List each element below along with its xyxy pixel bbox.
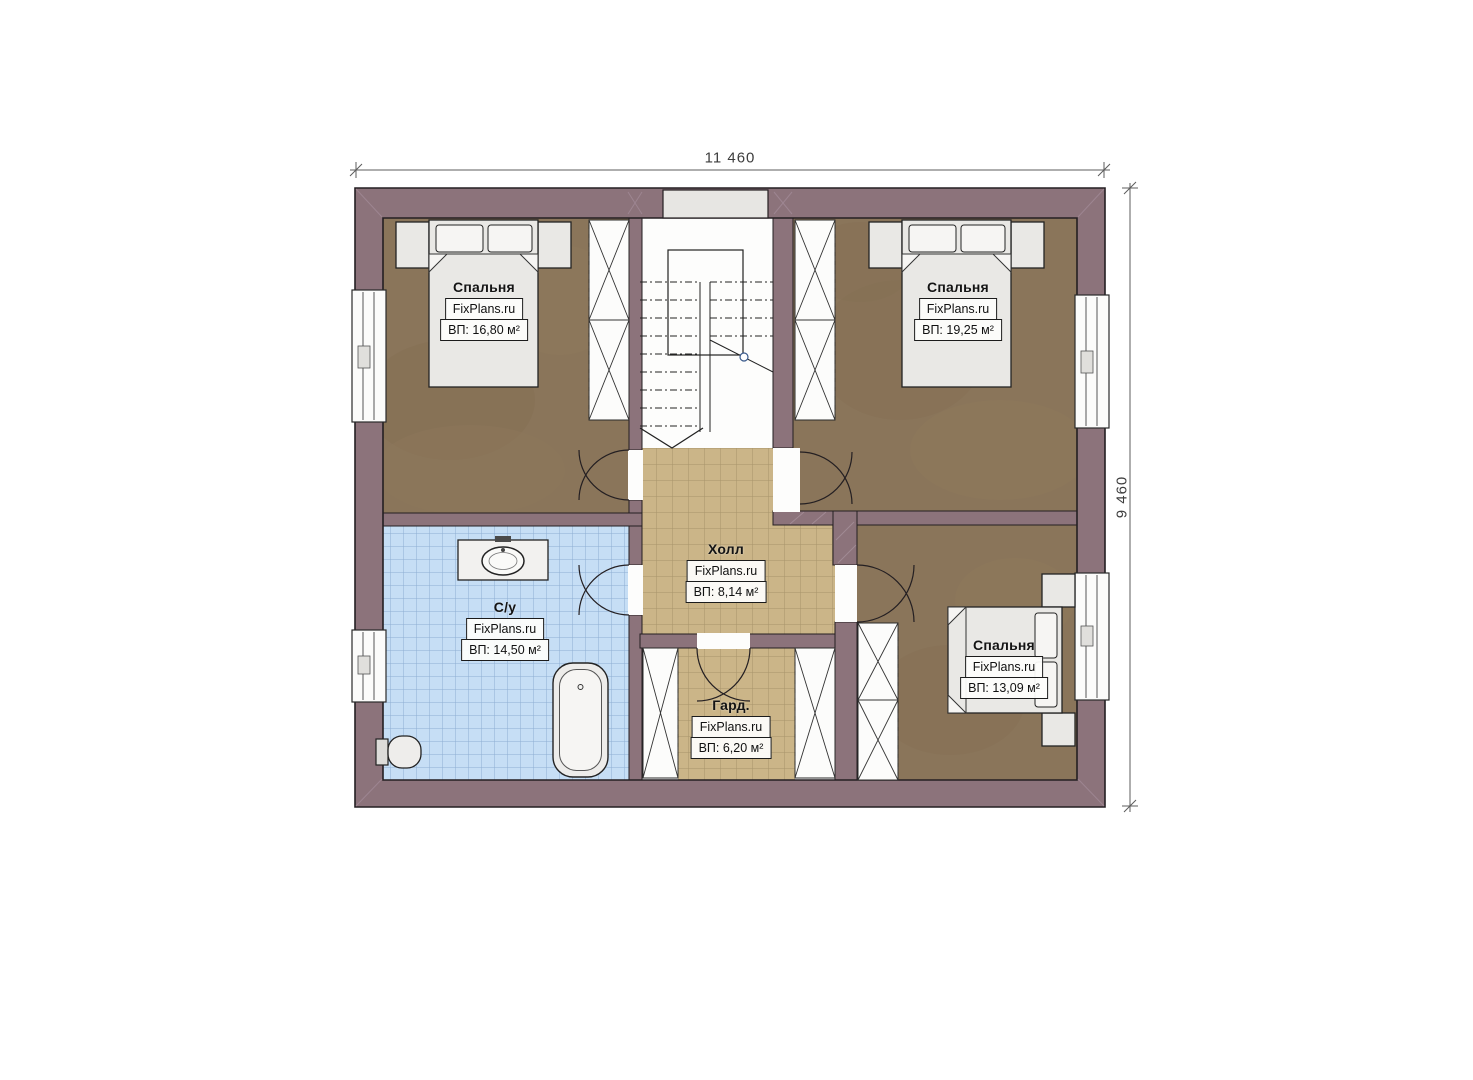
nightstand (396, 222, 429, 268)
floor-stairwell (640, 218, 773, 448)
door-gap-wardrobe-room (697, 633, 750, 649)
wall-hall-bedroom-right (835, 622, 857, 780)
closet-bedroom-bottom-right (858, 623, 898, 780)
toilet-icon (376, 736, 421, 768)
door-gap-bathroom (628, 565, 643, 615)
pillow (1035, 613, 1057, 658)
floor-hall-lower (773, 525, 835, 634)
door-gap-bedroom-top-left (628, 450, 643, 500)
wall-hall-corner-block (833, 511, 857, 565)
nightstand (1011, 222, 1044, 268)
closet-wardrobe-left (643, 648, 678, 778)
dimension-top (350, 162, 1110, 178)
wall-stairwell-right (773, 218, 793, 448)
wall-bathroom-top (383, 513, 642, 526)
door-gap-bedroom-bottom-right (835, 565, 857, 622)
bathtub-icon (553, 663, 608, 777)
wall-hall-left-mid (629, 500, 642, 565)
floor-plan-drawing (0, 0, 1473, 1080)
pillow (436, 225, 483, 252)
pillow (488, 225, 532, 252)
pillow (961, 225, 1005, 252)
window-right-lower (1075, 573, 1109, 700)
stair-break-node (740, 353, 748, 361)
nightstand (538, 222, 571, 268)
floor-wardrobe-room (678, 648, 795, 780)
sink-icon (458, 536, 548, 580)
floor-hall-upper (642, 448, 773, 634)
door-gap-bedroom-top-right (773, 448, 800, 512)
nightstand (1042, 574, 1075, 607)
window-right-upper (1075, 295, 1109, 428)
window-left-lower (352, 630, 386, 702)
pillow (1035, 662, 1057, 707)
wall-stairwell-left (629, 218, 642, 450)
closet-bedroom-top-left (589, 220, 629, 420)
nightstand (869, 222, 902, 268)
dimension-right (1122, 182, 1138, 812)
closet-wardrobe-right (795, 648, 835, 778)
closet-bedroom-top-right (795, 220, 835, 420)
window-left-upper (352, 290, 386, 422)
pillow (909, 225, 956, 252)
nightstand (1042, 713, 1075, 746)
chimney-niche (663, 190, 768, 218)
